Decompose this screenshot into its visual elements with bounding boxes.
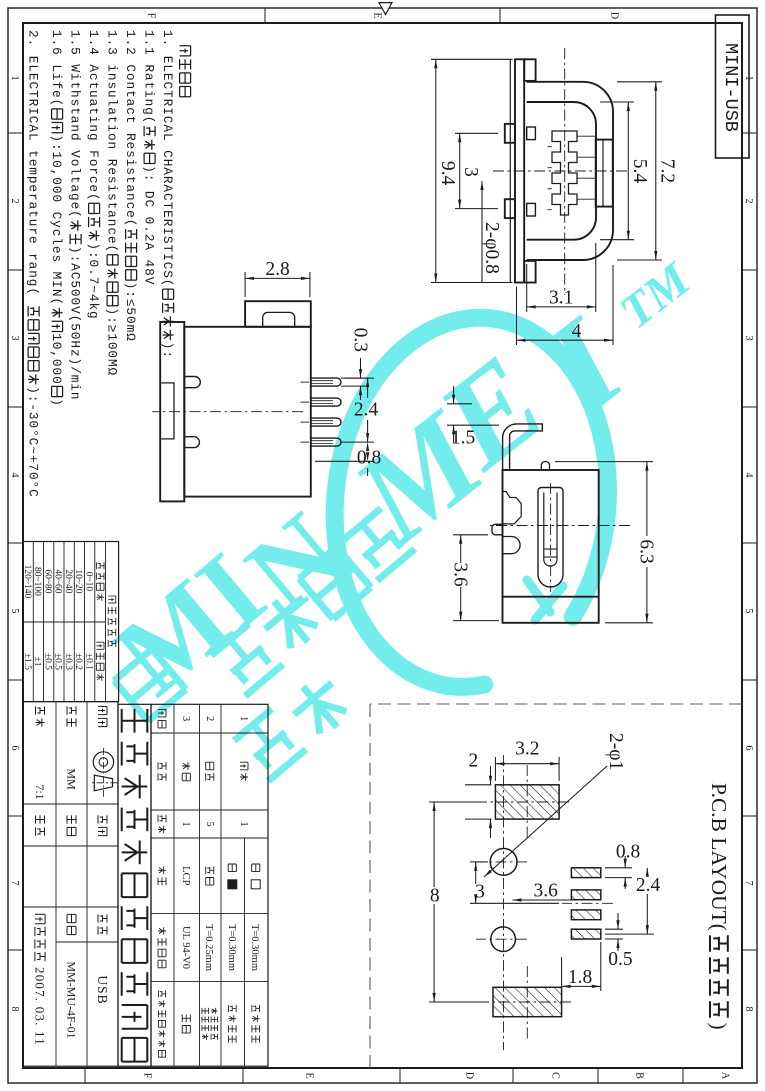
svg-text:):0.7~4kg: ):0.7~4kg [86, 242, 101, 319]
svg-text:7.2: 7.2 [657, 159, 678, 183]
svg-text:1. ELECTRICAL CHARACTERISTICS(: 1. ELECTRICAL CHARACTERISTICS( [160, 30, 175, 287]
svg-text:):AC500V(50Hz)/min: ):AC500V(50Hz)/min [68, 246, 83, 400]
svg-text:F: F [146, 13, 157, 19]
svg-text:):10,000 Cycles MIN(: ):10,000 Cycles MIN( [49, 134, 64, 306]
svg-text:1.2 Contact Resistance(: 1.2 Contact Resistance( [123, 30, 138, 227]
svg-text:2-φ0.8: 2-φ0.8 [481, 222, 502, 274]
svg-text:3: 3 [743, 336, 754, 341]
svg-text:): ) [707, 1023, 731, 1030]
svg-text:): DC 0.2A 48V: ): DC 0.2A 48V [142, 165, 157, 285]
svg-text:1.5: 1.5 [451, 427, 475, 448]
svg-text:4: 4 [572, 321, 582, 342]
svg-text:5.4: 5.4 [629, 159, 650, 184]
svg-text:3.1: 3.1 [549, 287, 573, 308]
svg-text:7:1: 7:1 [33, 784, 47, 799]
svg-text:MINI-USB: MINI-USB [720, 43, 741, 132]
svg-text:):-30°C~+70°C: ):-30°C~+70°C [26, 386, 41, 498]
svg-text:±0.3: ±0.3 [63, 653, 73, 670]
svg-text:2: 2 [743, 199, 754, 204]
svg-text:7: 7 [743, 881, 754, 886]
svg-text:2.4: 2.4 [354, 399, 379, 420]
svg-text:0~10: 0~10 [84, 572, 94, 592]
svg-text:20~40: 20~40 [63, 569, 73, 593]
svg-text:±1.5: ±1.5 [22, 653, 32, 670]
svg-text:1.1 Rating(: 1.1 Rating( [142, 30, 157, 124]
svg-text:1: 1 [180, 821, 191, 826]
svg-text:1.3 insulation Resistance(: 1.3 insulation Resistance( [105, 30, 120, 253]
svg-text:F: F [142, 1073, 153, 1079]
svg-text:3.6: 3.6 [534, 881, 559, 902]
svg-text:1.8: 1.8 [568, 967, 592, 988]
svg-text:1: 1 [238, 821, 249, 826]
svg-text:MM-MU-4F-01: MM-MU-4F-01 [65, 961, 79, 1038]
svg-text:1: 1 [238, 716, 249, 721]
svg-text:0.3: 0.3 [350, 328, 371, 352]
svg-text:±0.5: ±0.5 [42, 653, 52, 670]
svg-text:D: D [609, 12, 620, 19]
svg-text:8: 8 [9, 1007, 20, 1012]
svg-text:5: 5 [743, 609, 754, 614]
svg-text:1.4 Actuating Force(: 1.4 Actuating Force( [86, 30, 101, 202]
svg-text:10~20: 10~20 [73, 569, 83, 593]
svg-text:P.C.B LAYOUT(: P.C.B LAYOUT( [707, 783, 731, 931]
svg-text:1.6 Life(: 1.6 Life( [49, 30, 64, 107]
svg-text:3: 3 [460, 167, 481, 177]
svg-text:6: 6 [743, 746, 754, 751]
svg-text:7: 7 [9, 881, 20, 886]
svg-text:3.6: 3.6 [449, 562, 470, 587]
svg-text:40~60: 40~60 [53, 569, 63, 593]
svg-text:80~100: 80~100 [32, 567, 42, 596]
svg-text:2: 2 [9, 199, 20, 204]
svg-text:±0.2: ±0.2 [73, 653, 83, 670]
svg-text:0.8: 0.8 [616, 841, 640, 862]
svg-text:±0.1: ±0.1 [84, 653, 94, 670]
svg-text:UL 94-V0: UL 94-V0 [180, 926, 191, 969]
svg-text:8: 8 [743, 1007, 754, 1012]
svg-text:10,000: 10,000 [49, 333, 64, 384]
svg-text:2. ELECTRICAL temperature ran: 2. ELECTRICAL temperature rang( [26, 30, 41, 296]
svg-text:A: A [720, 1072, 731, 1080]
svg-text:2.8: 2.8 [265, 259, 289, 280]
svg-text:3: 3 [180, 716, 191, 721]
svg-text:3: 3 [475, 881, 485, 902]
svg-text:5: 5 [9, 609, 20, 614]
svg-text:4: 4 [9, 473, 20, 478]
svg-text:T=0.30mm: T=0.30mm [249, 924, 260, 971]
svg-text:LCP: LCP [180, 866, 191, 885]
svg-text:9.4: 9.4 [437, 161, 458, 186]
svg-text:MM: MM [65, 768, 79, 790]
svg-text:T=0.25mm: T=0.25mm [203, 924, 214, 971]
svg-text:):≥100MΩ: ):≥100MΩ [105, 308, 120, 377]
svg-text:60~80: 60~80 [42, 569, 52, 593]
svg-text:6: 6 [9, 746, 20, 751]
svg-text:8: 8 [430, 885, 440, 906]
svg-text:USB: USB [95, 975, 110, 1004]
svg-text:0.8: 0.8 [357, 447, 381, 468]
svg-text:):≤50mΩ: ):≤50mΩ [123, 282, 138, 342]
svg-text:±0.5: ±0.5 [53, 653, 63, 670]
svg-text:2-φ1: 2-φ1 [605, 733, 626, 770]
svg-text:D: D [464, 1072, 475, 1079]
svg-text:5: 5 [204, 821, 215, 826]
svg-text:): ) [49, 398, 64, 407]
svg-text:C: C [550, 1072, 561, 1079]
svg-text:±1: ±1 [32, 657, 42, 667]
svg-text:2.4: 2.4 [636, 875, 661, 896]
svg-text:120~140: 120~140 [22, 565, 32, 599]
svg-text:):: ): [160, 342, 175, 359]
svg-text:3.2: 3.2 [515, 738, 539, 759]
svg-text:0.5: 0.5 [608, 949, 632, 970]
svg-text:4: 4 [743, 473, 754, 478]
svg-text:2: 2 [204, 716, 215, 721]
svg-text:E: E [304, 1072, 315, 1078]
svg-text:6.3: 6.3 [636, 539, 657, 563]
svg-text:2007. 03. 11: 2007. 03. 11 [33, 967, 48, 1046]
svg-text:2: 2 [469, 750, 479, 771]
svg-text:B: B [634, 1072, 645, 1079]
svg-text:3: 3 [9, 336, 20, 341]
svg-text:1.5 Withstand Voltage(: 1.5 Withstand Voltage( [68, 30, 83, 219]
svg-text:1: 1 [9, 76, 20, 81]
svg-text:T=0.30mm: T=0.30mm [226, 924, 237, 971]
svg-text:E: E [372, 12, 383, 18]
